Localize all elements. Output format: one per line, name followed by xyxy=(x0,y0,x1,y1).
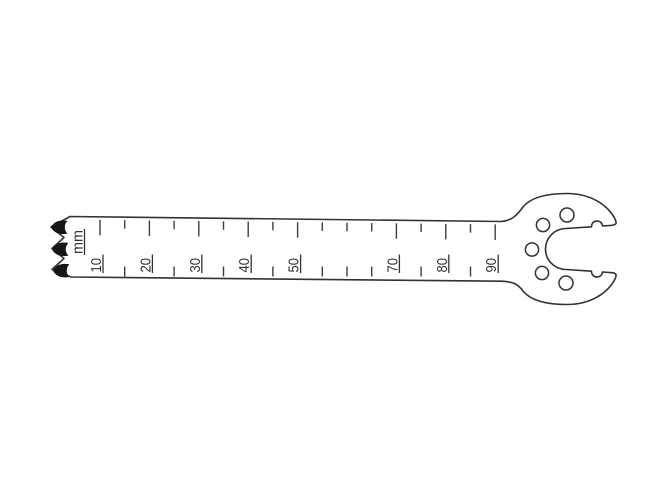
hub-hole xyxy=(525,243,538,256)
hub-hole xyxy=(535,266,548,279)
drawing-canvas: 1020304050708090 mm xyxy=(0,0,660,500)
hub-hole xyxy=(536,218,549,231)
hub-hole xyxy=(559,276,573,290)
unit-label-group: mm xyxy=(70,229,87,255)
hub-hole xyxy=(560,208,574,222)
tooth-icon xyxy=(52,221,67,234)
saw-blade-drawing: 1020304050708090 mm xyxy=(0,0,660,500)
